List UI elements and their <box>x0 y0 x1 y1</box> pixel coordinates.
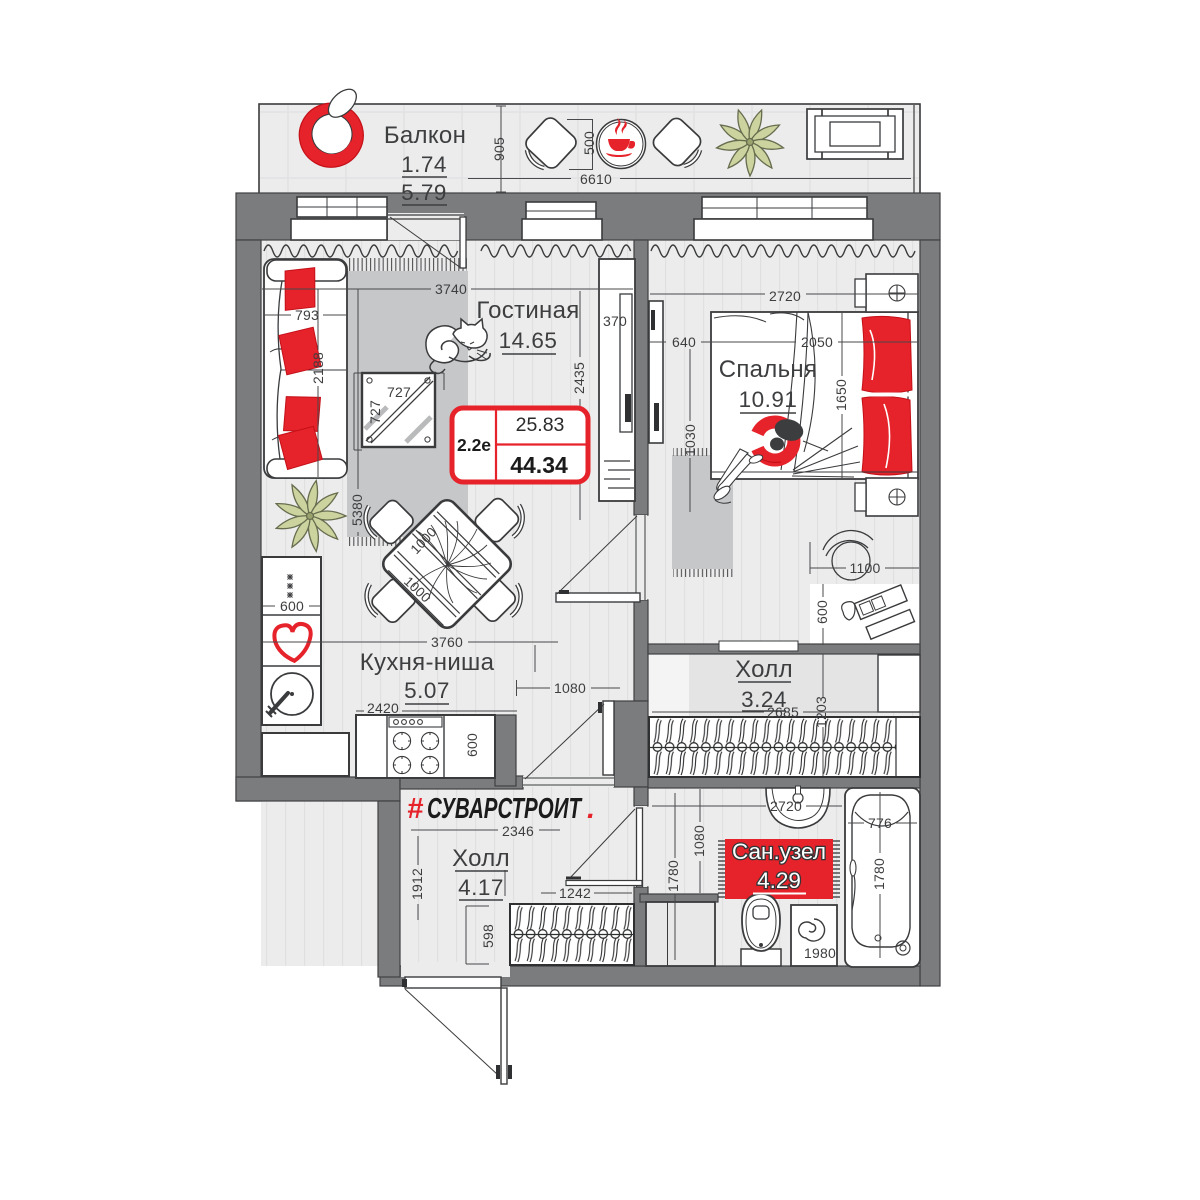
svg-text:1980: 1980 <box>804 945 836 961</box>
svg-text:Холл: Холл <box>452 845 510 872</box>
svg-text:1080: 1080 <box>554 680 586 696</box>
svg-text:2720: 2720 <box>769 288 801 304</box>
svg-text:1780: 1780 <box>871 858 887 890</box>
svg-text:1242: 1242 <box>559 885 591 901</box>
svg-text:2720: 2720 <box>770 798 802 814</box>
svg-text:6610: 6610 <box>580 171 612 187</box>
svg-text:.: . <box>587 793 595 825</box>
svg-text:2346: 2346 <box>502 823 534 839</box>
svg-text:370: 370 <box>603 313 627 329</box>
svg-text:СУВАРСТРОИТ: СУВАРСТРОИТ <box>427 793 583 825</box>
svg-text:Гостиная: Гостиная <box>476 297 579 324</box>
svg-text:44.34: 44.34 <box>510 452 568 478</box>
svg-text:Сан.узел: Сан.узел <box>732 839 826 864</box>
svg-text:Балкон: Балкон <box>384 122 466 149</box>
svg-text:1100: 1100 <box>850 560 881 576</box>
svg-text:727: 727 <box>387 384 411 400</box>
svg-text:1080: 1080 <box>691 825 707 857</box>
svg-text:2.2е: 2.2е <box>457 435 491 455</box>
svg-text:1912: 1912 <box>409 868 425 900</box>
svg-text:1030: 1030 <box>682 424 698 456</box>
svg-text:10.91: 10.91 <box>739 387 798 412</box>
svg-text:3740: 3740 <box>435 281 467 297</box>
svg-text:25.83: 25.83 <box>516 414 565 436</box>
svg-text:#: # <box>407 793 424 825</box>
svg-text:5.07: 5.07 <box>404 678 450 703</box>
svg-text:Спальня: Спальня <box>719 356 818 383</box>
svg-text:500: 500 <box>581 131 597 155</box>
svg-text:3.24: 3.24 <box>741 687 787 712</box>
svg-text:776: 776 <box>868 815 892 831</box>
svg-text:793: 793 <box>295 307 319 323</box>
svg-text:2188: 2188 <box>310 352 326 384</box>
svg-text:2435: 2435 <box>571 362 587 394</box>
svg-text:600: 600 <box>814 600 830 624</box>
svg-text:5.79: 5.79 <box>401 180 447 205</box>
svg-text:2050: 2050 <box>801 334 833 350</box>
svg-text:4.17: 4.17 <box>458 875 504 900</box>
svg-text:5380: 5380 <box>349 494 365 526</box>
svg-text:Кухня-ниша: Кухня-ниша <box>360 649 495 676</box>
svg-text:1780: 1780 <box>665 860 681 892</box>
svg-text:600: 600 <box>280 598 304 614</box>
svg-text:1203: 1203 <box>813 696 829 728</box>
svg-text:14.65: 14.65 <box>499 328 558 353</box>
svg-text:600: 600 <box>464 733 480 757</box>
svg-text:640: 640 <box>672 334 696 350</box>
svg-text:905: 905 <box>491 137 507 161</box>
svg-text:1.74: 1.74 <box>401 152 447 177</box>
svg-text:727: 727 <box>367 400 383 424</box>
svg-text:Холл: Холл <box>735 656 793 683</box>
svg-text:2420: 2420 <box>367 700 399 716</box>
svg-text:4.29: 4.29 <box>757 868 801 893</box>
svg-text:3760: 3760 <box>431 634 463 650</box>
svg-text:598: 598 <box>480 924 496 948</box>
svg-text:1650: 1650 <box>833 379 849 411</box>
